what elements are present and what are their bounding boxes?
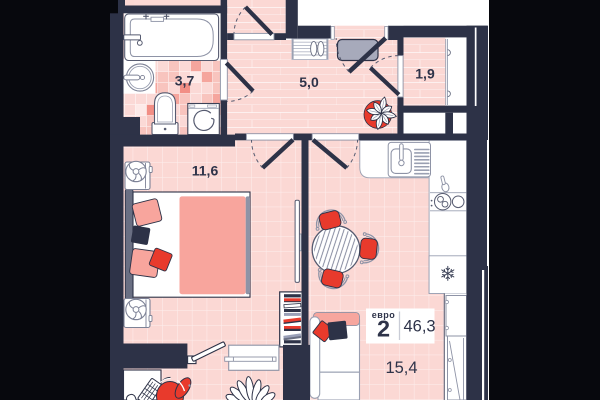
- svg-text:46,3: 46,3: [404, 318, 436, 336]
- svg-text:5,0: 5,0: [299, 74, 319, 90]
- svg-text:1,9: 1,9: [415, 66, 435, 82]
- svg-text:15,4: 15,4: [385, 359, 417, 377]
- svg-text:3,7: 3,7: [175, 73, 195, 89]
- svg-text:2: 2: [377, 316, 390, 342]
- svg-text:11,6: 11,6: [192, 163, 219, 179]
